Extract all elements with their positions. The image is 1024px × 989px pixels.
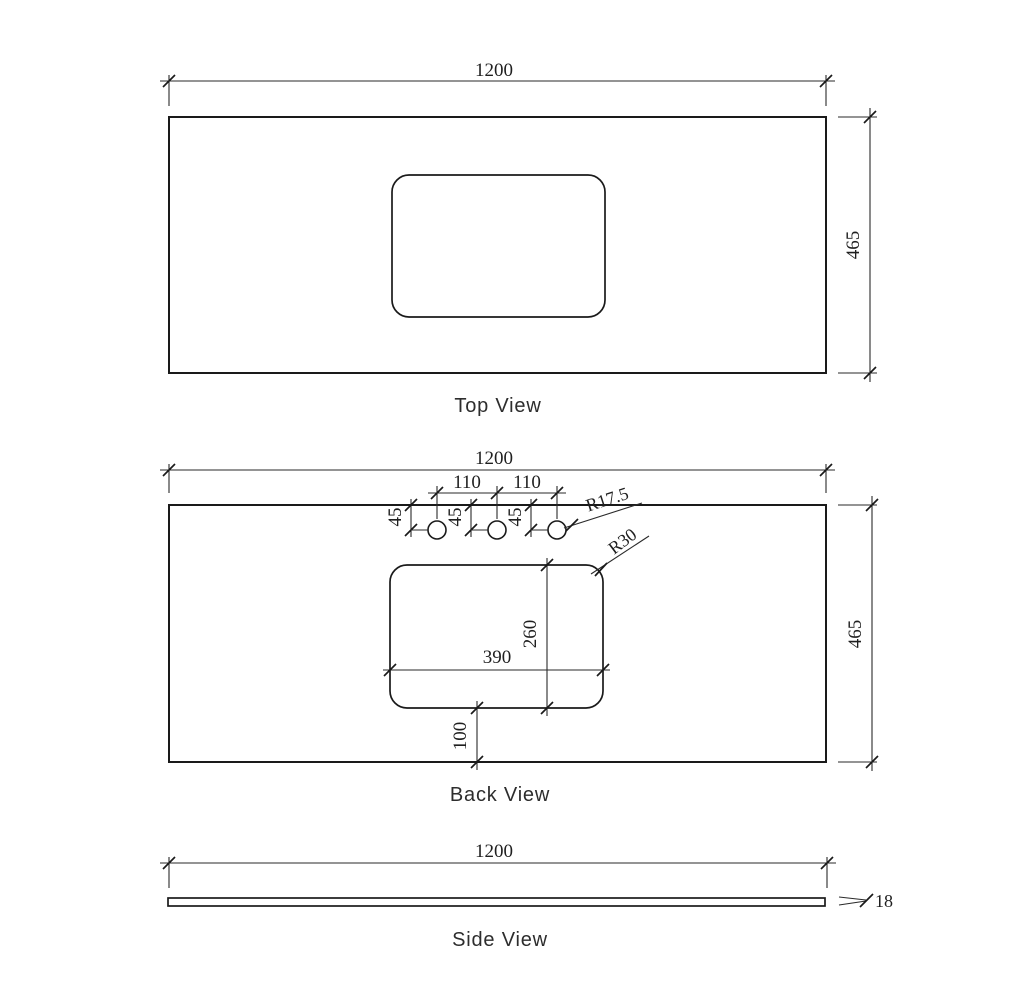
cutout-width-dimension: 390 [383, 647, 610, 676]
hole-radius-leader: R17.5 [564, 483, 642, 531]
top-view: 1200 465 Top View [160, 60, 877, 417]
hole-radius-label: R17.5 [583, 483, 631, 515]
dimension-label: 1200 [475, 841, 513, 862]
back-view-sink-cutout [390, 565, 603, 708]
side-view-label: Side View [452, 929, 548, 951]
drawing-canvas: 1200 465 Top View 1200 [0, 0, 1024, 989]
dimension-label: 110 [453, 472, 481, 493]
faucet-hole-2 [488, 521, 506, 539]
dimension-label: 45 [385, 508, 406, 527]
top-view-outline [169, 117, 826, 373]
top-view-label: Top View [454, 395, 541, 417]
corner-radius-leader: R30 [591, 524, 649, 576]
leader-tick [566, 519, 578, 531]
faucet-hole-1 [428, 521, 446, 539]
back-view: 1200 465 110 110 [160, 448, 878, 806]
dimension-label: 45 [445, 508, 466, 527]
dimension-label: 465 [843, 231, 864, 260]
dimension-line [839, 897, 866, 900]
side-view: 1200 18 Side View [160, 841, 893, 951]
side-view-width-dimension: 1200 [160, 841, 836, 888]
back-view-outline [169, 505, 826, 762]
cutout-depth-dimension: 260 [520, 558, 553, 716]
side-view-slab [168, 898, 825, 906]
top-view-depth-dimension: 465 [838, 108, 877, 382]
dimension-label: 110 [513, 472, 541, 493]
faucet-hole-3 [548, 521, 566, 539]
dimension-label: 100 [450, 722, 471, 751]
thickness-dimension: 18 [839, 891, 893, 911]
dimension-label: 45 [505, 508, 526, 527]
dimension-label: 18 [875, 891, 893, 911]
dimension-label: 1200 [475, 60, 513, 81]
cutout-bottom-offset-dimension: 100 [450, 701, 483, 770]
back-view-label: Back View [450, 784, 550, 806]
top-view-width-dimension: 1200 [160, 60, 835, 106]
dimension-label: 390 [483, 647, 512, 668]
dimension-label: 465 [845, 620, 866, 649]
dimension-label: 260 [520, 620, 541, 649]
dimension-tick [860, 894, 873, 907]
back-view-depth-dimension: 465 [838, 496, 878, 771]
corner-radius-label: R30 [604, 524, 640, 558]
technical-drawing: 1200 465 Top View 1200 [0, 0, 1024, 989]
dimension-label: 1200 [475, 448, 513, 469]
top-view-sink-cutout [392, 175, 605, 317]
